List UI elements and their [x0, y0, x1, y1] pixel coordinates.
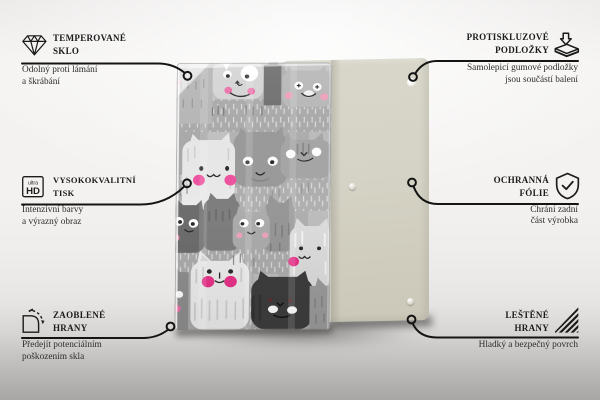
svg-text:HD: HD	[26, 186, 40, 197]
